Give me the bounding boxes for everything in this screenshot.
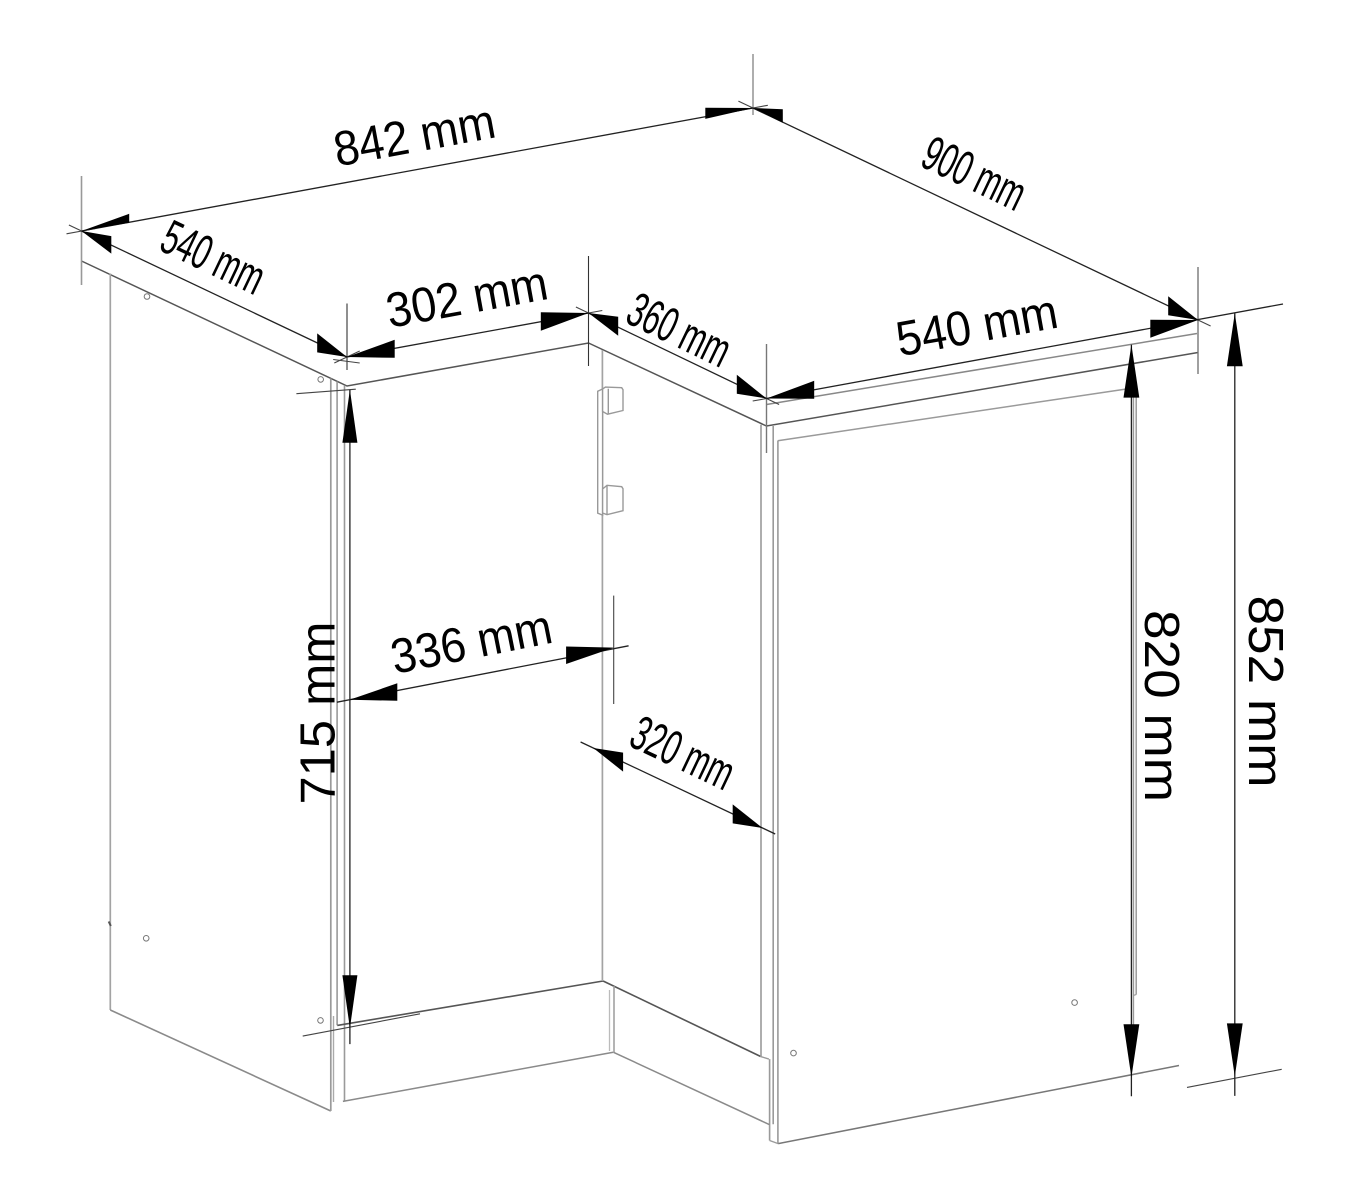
svg-text:852 mm: 852 mm bbox=[1238, 596, 1292, 788]
svg-text:540 mm: 540 mm bbox=[153, 210, 274, 305]
svg-text:820 mm: 820 mm bbox=[1134, 610, 1188, 802]
svg-text:302 mm: 302 mm bbox=[382, 256, 552, 338]
svg-text:842 mm: 842 mm bbox=[329, 95, 499, 178]
svg-text:715 mm: 715 mm bbox=[292, 622, 346, 805]
svg-text:320 mm: 320 mm bbox=[622, 706, 743, 801]
svg-text:336 mm: 336 mm bbox=[386, 600, 556, 685]
svg-text:900 mm: 900 mm bbox=[914, 126, 1035, 221]
svg-text:540 mm: 540 mm bbox=[892, 285, 1062, 367]
svg-text:360 mm: 360 mm bbox=[619, 283, 740, 378]
